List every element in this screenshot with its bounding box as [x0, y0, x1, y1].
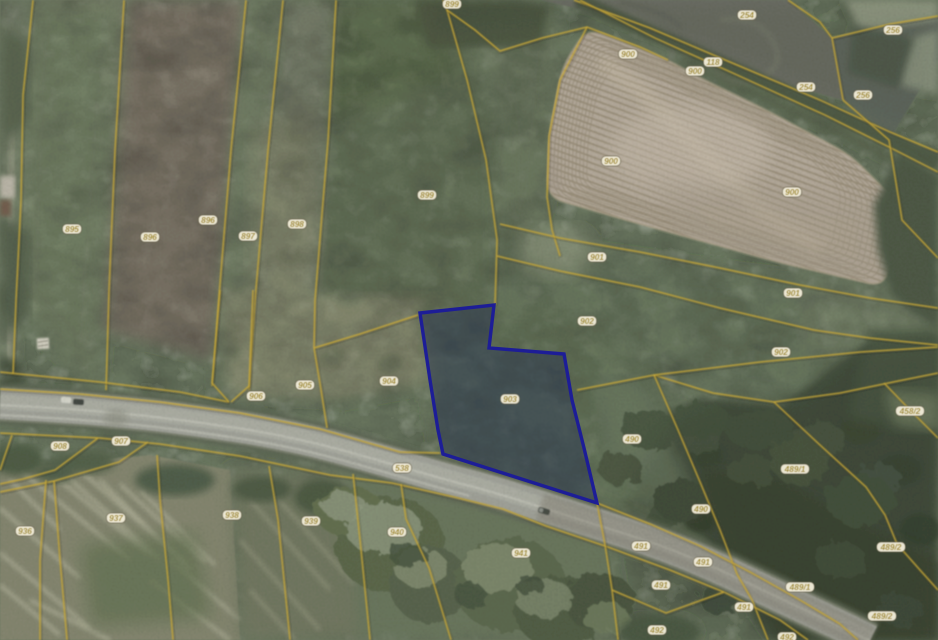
- svg-text:936: 936: [18, 526, 32, 536]
- svg-text:489/2: 489/2: [871, 611, 893, 621]
- svg-text:899: 899: [420, 190, 434, 200]
- svg-text:937: 937: [109, 513, 123, 523]
- svg-text:901: 901: [786, 288, 800, 298]
- svg-text:897: 897: [241, 231, 255, 241]
- svg-text:899: 899: [445, 0, 459, 9]
- svg-text:490: 490: [624, 434, 639, 444]
- svg-text:491: 491: [695, 557, 710, 567]
- svg-text:896: 896: [201, 215, 215, 225]
- svg-text:941: 941: [514, 548, 528, 558]
- svg-text:489/1: 489/1: [784, 464, 806, 474]
- svg-text:492: 492: [779, 632, 794, 640]
- svg-text:491: 491: [653, 580, 668, 590]
- svg-text:900: 900: [785, 187, 799, 197]
- svg-text:491: 491: [736, 602, 751, 612]
- svg-text:939: 939: [304, 516, 318, 526]
- svg-text:490: 490: [693, 504, 708, 514]
- svg-text:491: 491: [633, 541, 648, 551]
- svg-text:489/2: 489/2: [880, 542, 902, 552]
- svg-text:906: 906: [249, 391, 263, 401]
- svg-text:489/1: 489/1: [789, 582, 811, 592]
- svg-text:902: 902: [774, 347, 788, 357]
- svg-text:904: 904: [382, 376, 396, 386]
- svg-text:938: 938: [225, 510, 239, 520]
- svg-text:254: 254: [798, 82, 813, 92]
- svg-text:254: 254: [739, 10, 754, 20]
- svg-text:458/2: 458/2: [899, 406, 921, 416]
- svg-text:900: 900: [604, 156, 618, 166]
- svg-text:900: 900: [688, 66, 702, 76]
- svg-text:907: 907: [114, 436, 128, 446]
- svg-text:898: 898: [290, 219, 304, 229]
- svg-text:903: 903: [503, 394, 517, 404]
- svg-text:905: 905: [298, 380, 312, 390]
- svg-text:118: 118: [706, 57, 720, 67]
- svg-text:896: 896: [143, 232, 157, 242]
- svg-text:538: 538: [395, 463, 409, 473]
- svg-text:908: 908: [53, 441, 67, 451]
- svg-text:940: 940: [390, 527, 404, 537]
- svg-text:492: 492: [649, 625, 664, 635]
- svg-text:256: 256: [885, 25, 900, 35]
- svg-text:902: 902: [580, 316, 594, 326]
- svg-text:900: 900: [621, 49, 635, 59]
- svg-text:901: 901: [590, 252, 604, 262]
- svg-text:895: 895: [65, 224, 79, 234]
- svg-text:256: 256: [855, 90, 870, 100]
